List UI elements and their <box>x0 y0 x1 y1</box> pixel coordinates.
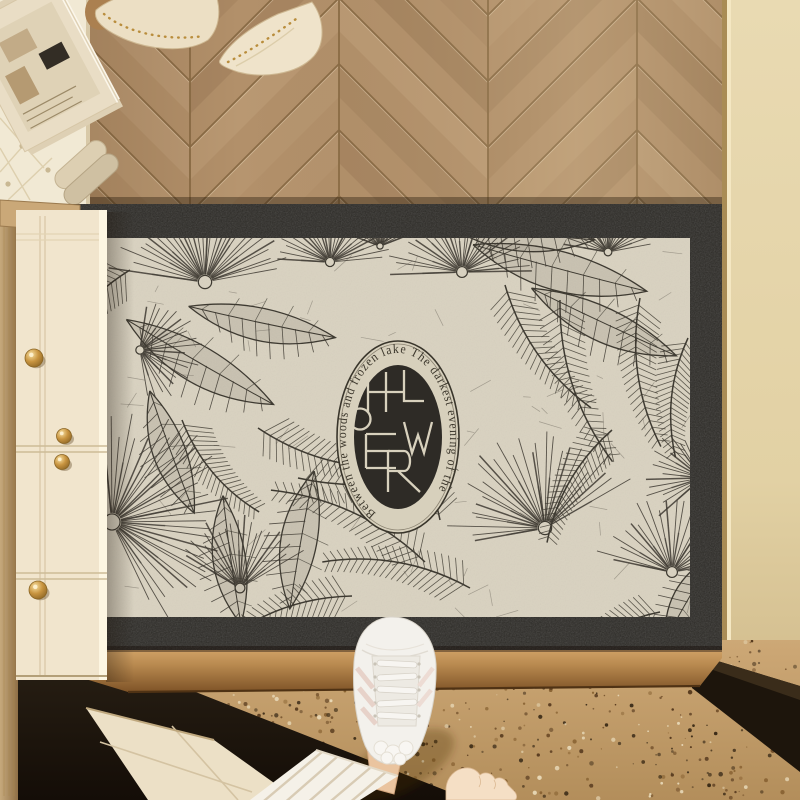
screenshot-root: Between the woods and frozen lake The da… <box>0 0 800 800</box>
entryway-scene: Between the woods and frozen lake The da… <box>0 0 800 800</box>
mat-top-shadow <box>62 197 722 205</box>
door-shadow-on-mat <box>106 212 134 682</box>
doormat: Between the woods and frozen lake The da… <box>45 187 751 675</box>
cabinet-door <box>16 210 107 680</box>
